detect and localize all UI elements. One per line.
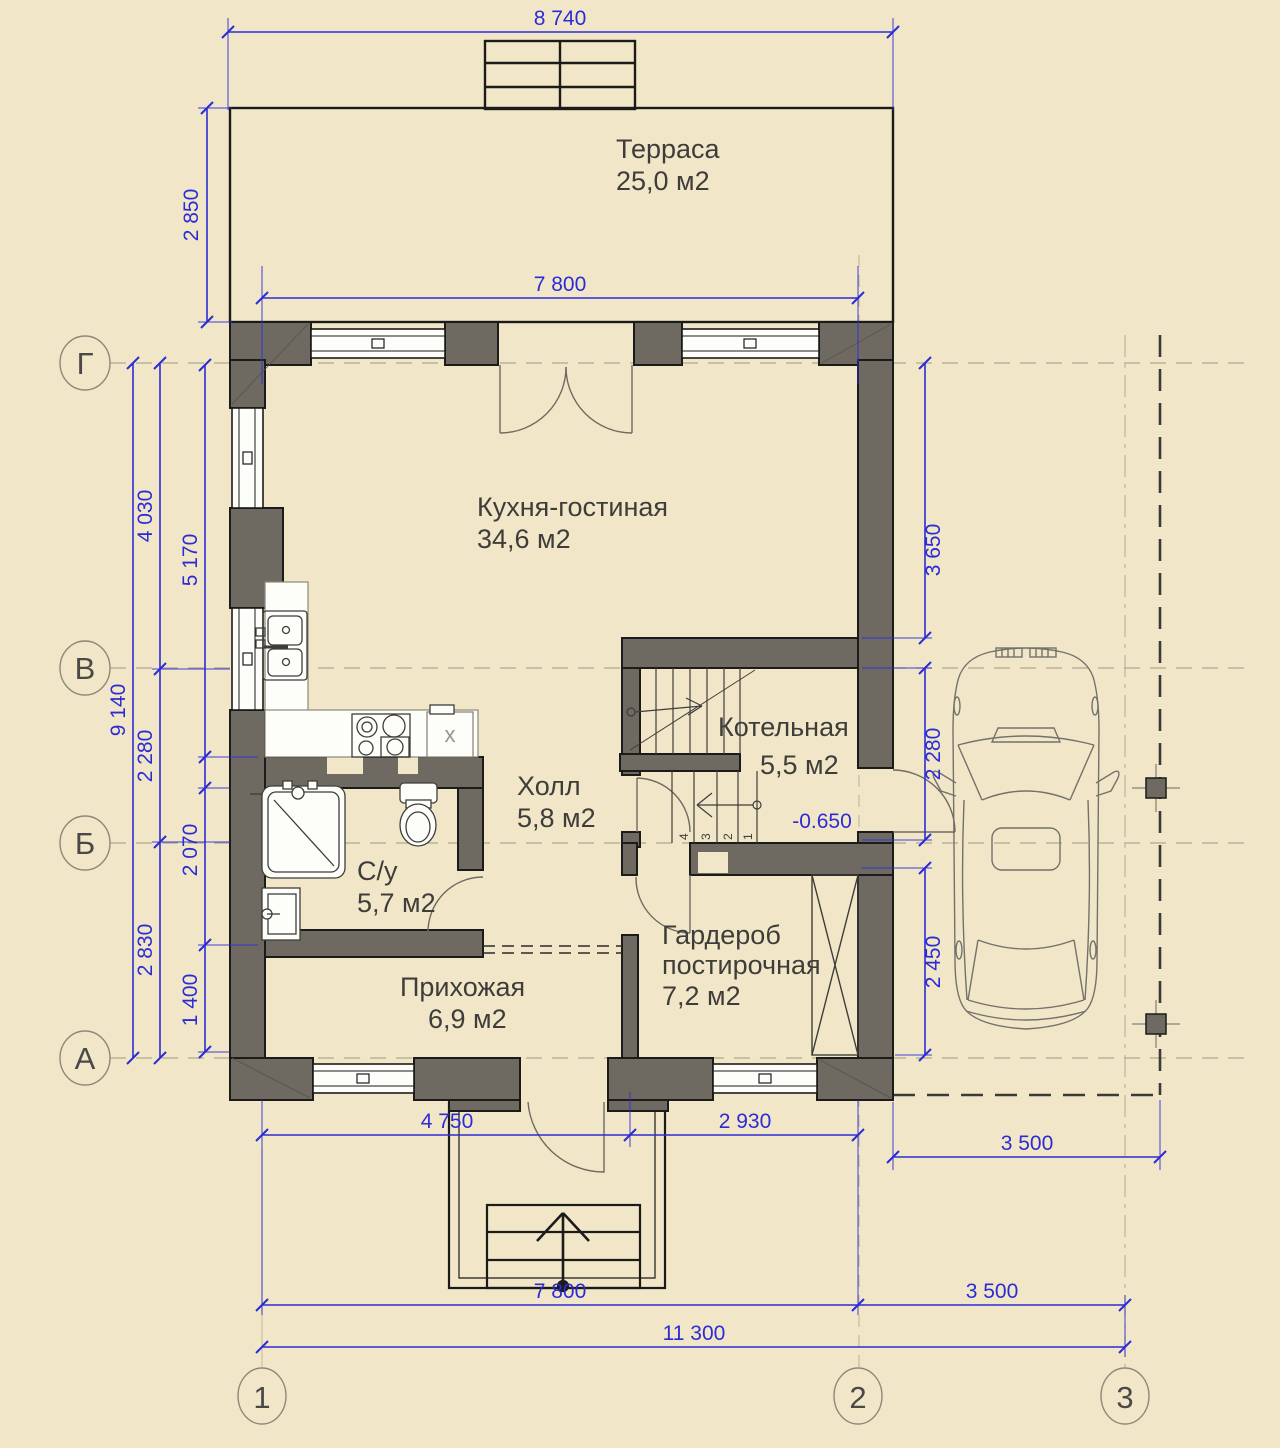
room-label-terrace: Терраса 25,0 м2 [616,134,721,196]
axis-row-v: В [75,651,96,686]
axis-col-1: 1 [253,1380,270,1415]
shower [250,781,345,878]
room-label-hall: Холл 5,8 м2 [517,771,596,833]
svg-text:34,6 м2: 34,6 м2 [477,524,571,554]
kitchen-counter: х [256,582,478,757]
double-door-terrace [500,365,632,433]
svg-text:Прихожая: Прихожая [400,972,525,1002]
dim-axis-g-v: 4 030 [134,490,157,543]
room-label-wardrobe: Гардероб постирочная 7,2 м2 [662,920,821,1011]
svg-text:5,5 м2: 5,5 м2 [760,750,839,780]
dim-total-width: 11 300 [663,1322,726,1345]
bathroom-door [428,877,483,932]
carport-posts [1132,764,1180,1048]
svg-text:Холл: Холл [517,771,581,801]
room-labels: Терраса 25,0 м2 Кухня-гостиная 34,6 м2 К… [357,134,849,1034]
step-number: 3 [699,833,713,840]
axis-row-b: Б [75,826,95,861]
floor-plan-drawing: 4 3 2 1 х [0,0,1280,1443]
dim-axis-b-a: 2 830 [134,924,157,977]
dim-span-2-3: 3 500 [966,1280,1019,1303]
svg-text:5,8 м2: 5,8 м2 [517,803,596,833]
dim-right-wardrobe: 2 450 [922,936,945,989]
svg-text:Гардероб: Гардероб [662,920,781,950]
axis-row-a: А [75,1041,96,1076]
car [933,648,1119,1029]
svg-text:Терраса: Терраса [616,134,721,164]
axis-col-3: 3 [1116,1380,1133,1415]
dim-bath-height: 2 070 [179,824,202,877]
step-number: 2 [721,833,735,840]
dim-entry-height: 1 400 [179,974,202,1027]
dim-carport-width: 3 500 [1001,1132,1054,1155]
dim-right-kitchen: 3 650 [922,524,945,577]
boiler-stair-door [637,778,690,832]
axis-row-g: Г [77,346,94,381]
terrace-steps [485,41,635,109]
dim-terrace-front: 7 800 [534,273,587,296]
car-mirror-right [1096,771,1119,796]
dim-span-1-2: 7 800 [534,1280,587,1303]
step-number: 4 [677,833,691,840]
room-label-entry: Прихожая 6,9 м2 [400,972,525,1034]
svg-text:Котельная: Котельная [718,712,849,742]
carport-post [1146,1014,1166,1034]
axis-col-2: 2 [849,1380,866,1415]
stair-step-numbers: 4 3 2 1 [677,833,755,840]
floor-plan-page: 4 3 2 1 х [0,0,1280,1443]
dim-top-width: 8 740 [534,7,587,30]
dim-bottom-left: 4 750 [421,1110,474,1133]
step-number: 1 [741,833,755,840]
svg-text:25,0 м2: 25,0 м2 [616,166,710,196]
toilet [400,783,437,846]
svg-text:5,7 м2: 5,7 м2 [357,888,436,918]
svg-text:С/у: С/у [357,856,398,886]
level-mark: -0.650 [792,810,852,833]
dim-axis-v-b: 2 280 [134,730,157,783]
dim-kitchen-height: 5 170 [179,534,202,587]
svg-text:6,9 м2: 6,9 м2 [428,1004,507,1034]
dim-right-boiler: 2 280 [922,728,945,781]
carport-post [1146,778,1166,798]
svg-text:постирочная: постирочная [662,950,821,980]
stove [352,714,410,757]
appliance-x-mark: х [445,722,456,747]
svg-text:Кухня-гостиная: Кухня-гостиная [477,492,668,522]
zone-boundary [483,946,622,953]
entry-door-swing [528,1102,604,1172]
room-label-kitchen-living: Кухня-гостиная 34,6 м2 [477,492,668,554]
entry-porch [449,1102,665,1291]
washbasin [262,888,300,940]
dim-left-total: 9 140 [107,684,130,737]
room-label-bathroom: С/у 5,7 м2 [357,856,436,918]
dim-terrace-depth: 2 850 [180,189,203,242]
dim-bottom-right: 2 930 [719,1110,772,1133]
svg-text:7,2 м2: 7,2 м2 [662,981,741,1011]
